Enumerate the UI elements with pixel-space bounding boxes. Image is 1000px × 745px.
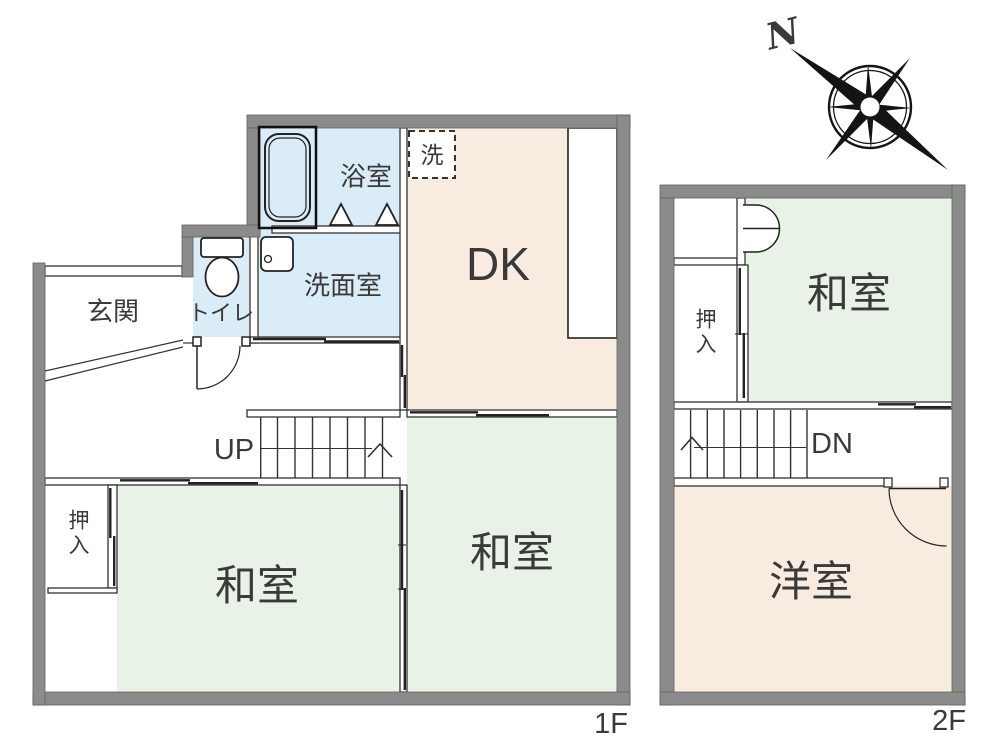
floor1-plan <box>33 115 630 705</box>
genkan-step-line <box>45 347 183 381</box>
room-label-tatami-right: 和室 <box>470 531 554 575</box>
toilet-bowl-icon <box>206 258 239 297</box>
room-label-tatami-2f: 和室 <box>807 272 891 316</box>
room-label-toilet: トイレ <box>188 301 254 324</box>
kitchen-counter <box>568 128 617 338</box>
floorplan-drawing <box>0 0 1000 745</box>
stairs-direction-arrow <box>681 438 703 451</box>
room-label-dk: DK <box>466 240 530 288</box>
floor1-stairs <box>260 417 392 478</box>
toilet-door-arc <box>197 346 240 389</box>
room-label-washer: 洗 <box>421 143 444 167</box>
compass-rose-icon <box>790 48 948 170</box>
floor1-label: 1F <box>594 709 628 739</box>
room-label-western: 洋室 <box>769 560 853 604</box>
toilet-tank-icon <box>201 238 243 257</box>
floor2-label: 2F <box>932 706 966 736</box>
room-label-bath: 浴室 <box>340 163 392 190</box>
floorplan-page: 玄関 トイレ 浴室 洗面室 洗 DK UP 和室 和室 押入 1F 和室 押入 … <box>0 0 1000 745</box>
room-label-closet-2f: 押入 <box>693 308 715 358</box>
room-label-genkan: 玄関 <box>87 298 139 325</box>
room-label-washroom: 洗面室 <box>304 272 382 299</box>
stairs-label-dn: DN <box>811 429 853 459</box>
room-label-tatami-left: 和室 <box>215 564 299 608</box>
floor2-stairs <box>681 410 807 478</box>
sink-icon <box>261 237 293 271</box>
stairs-label-up: UP <box>214 435 254 465</box>
genkan-step-line <box>45 340 183 371</box>
room-fill-bath-washroom <box>258 128 403 343</box>
room-label-closet-1f: 押入 <box>66 509 88 559</box>
stairs-direction-arrow <box>368 444 392 457</box>
